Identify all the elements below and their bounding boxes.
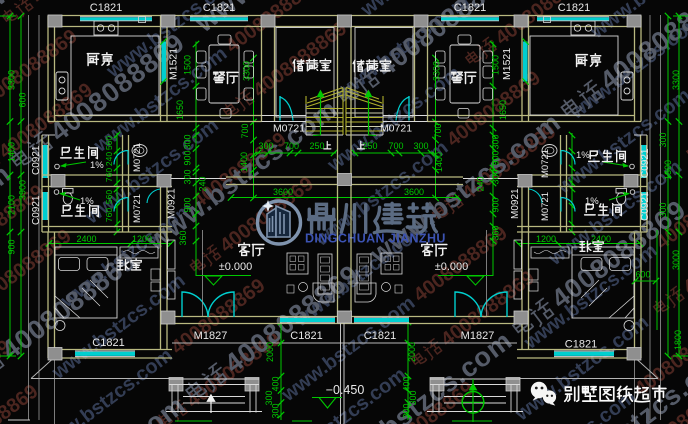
svg-text:1200: 1200 [536, 234, 556, 244]
svg-text:300: 300 [658, 202, 668, 217]
svg-text:600: 600 [18, 92, 28, 107]
svg-text:1400: 1400 [434, 152, 444, 172]
svg-text:2100: 2100 [7, 195, 17, 215]
svg-text:C1821: C1821 [290, 330, 322, 342]
svg-text:400: 400 [271, 376, 281, 391]
svg-text:M1521: M1521 [168, 48, 180, 80]
svg-text:900: 900 [491, 150, 501, 165]
svg-text:1300: 1300 [663, 160, 673, 180]
svg-text:C0921: C0921 [640, 148, 651, 178]
svg-text:C1821: C1821 [558, 2, 590, 14]
svg-text:900: 900 [183, 197, 193, 212]
svg-text:3300: 3300 [432, 61, 442, 81]
svg-text:1800: 1800 [673, 330, 683, 350]
svg-text:C0921: C0921 [31, 195, 42, 225]
svg-text:M0721: M0721 [380, 123, 412, 135]
svg-text:M0721: M0721 [132, 143, 143, 172]
svg-text:700: 700 [240, 123, 250, 138]
svg-text:M0921: M0921 [167, 188, 178, 219]
svg-text:300: 300 [413, 141, 428, 151]
svg-text:300: 300 [402, 403, 412, 418]
svg-text:C1821: C1821 [92, 337, 124, 349]
svg-text:1400: 1400 [239, 152, 249, 172]
svg-text:1%: 1% [585, 196, 599, 207]
svg-text:C1821: C1821 [203, 2, 235, 14]
svg-text:1650: 1650 [175, 100, 185, 120]
svg-text:300: 300 [264, 390, 274, 405]
svg-text:360: 360 [178, 230, 188, 245]
svg-text:±0.000: ±0.000 [219, 261, 253, 273]
svg-text:300: 300 [271, 403, 281, 418]
svg-text:2000: 2000 [407, 342, 417, 362]
svg-text:1%: 1% [576, 150, 590, 161]
svg-text:C1821: C1821 [364, 330, 396, 342]
svg-text:900: 900 [183, 150, 193, 165]
svg-text:1500: 1500 [183, 55, 193, 75]
svg-text:300: 300 [183, 169, 193, 184]
svg-text:560: 560 [104, 190, 114, 204]
svg-text:3600: 3600 [273, 187, 293, 197]
svg-text:M1827: M1827 [461, 330, 495, 342]
svg-text:240: 240 [104, 152, 114, 166]
svg-text:400: 400 [402, 376, 412, 391]
svg-text:700: 700 [284, 141, 299, 151]
svg-text:1500: 1500 [491, 55, 501, 75]
svg-text:C1821: C1821 [90, 2, 122, 14]
svg-text:3300: 3300 [671, 70, 681, 90]
svg-text:2000: 2000 [265, 342, 275, 362]
svg-text:300: 300 [491, 169, 501, 184]
svg-text:900: 900 [491, 197, 501, 212]
svg-text:C1821: C1821 [565, 339, 597, 351]
svg-text:700: 700 [388, 141, 403, 151]
svg-text:±0.000: ±0.000 [435, 261, 469, 273]
svg-text:DINGCHUAN JIANZHU: DINGCHUAN JIANZHU [305, 232, 446, 246]
svg-text:1400: 1400 [7, 142, 17, 162]
svg-text:760: 760 [104, 168, 114, 182]
svg-text:2400: 2400 [76, 234, 96, 244]
svg-text:3900: 3900 [18, 180, 28, 200]
svg-text:M1521: M1521 [501, 48, 513, 80]
svg-text:300: 300 [658, 132, 668, 147]
svg-text:M0921: M0921 [510, 188, 521, 219]
svg-text:C0921: C0921 [31, 145, 42, 175]
svg-text:700: 700 [433, 123, 443, 138]
svg-text:1650: 1650 [498, 100, 508, 120]
svg-text:760: 760 [104, 208, 114, 222]
svg-text:900: 900 [7, 239, 17, 254]
svg-text:M0721: M0721 [540, 192, 551, 221]
svg-text:−0.450: −0.450 [326, 383, 365, 397]
svg-text:C0921: C0921 [640, 191, 651, 221]
svg-text:240: 240 [476, 176, 486, 191]
svg-text:300: 300 [258, 141, 273, 151]
svg-text:M0721: M0721 [273, 123, 305, 135]
svg-text:1%: 1% [90, 160, 104, 171]
svg-text:1200: 1200 [132, 234, 152, 244]
svg-text:250: 250 [362, 141, 377, 151]
svg-text:M0721: M0721 [132, 194, 143, 223]
svg-text:3600: 3600 [404, 187, 424, 197]
svg-text:3300: 3300 [7, 70, 17, 90]
svg-text:C1821: C1821 [454, 2, 486, 14]
svg-text:3000: 3000 [671, 250, 681, 270]
svg-text:250: 250 [309, 141, 324, 151]
svg-text:560: 560 [104, 136, 114, 150]
svg-text:300: 300 [183, 134, 193, 149]
svg-text:M0721: M0721 [540, 149, 551, 178]
svg-text:M1827: M1827 [194, 330, 228, 342]
svg-text:240: 240 [198, 176, 208, 191]
svg-text:300: 300 [408, 390, 418, 405]
svg-text:300: 300 [491, 134, 501, 149]
svg-text:3300: 3300 [242, 61, 252, 81]
svg-text:600: 600 [635, 270, 650, 280]
svg-text:360: 360 [491, 225, 501, 240]
